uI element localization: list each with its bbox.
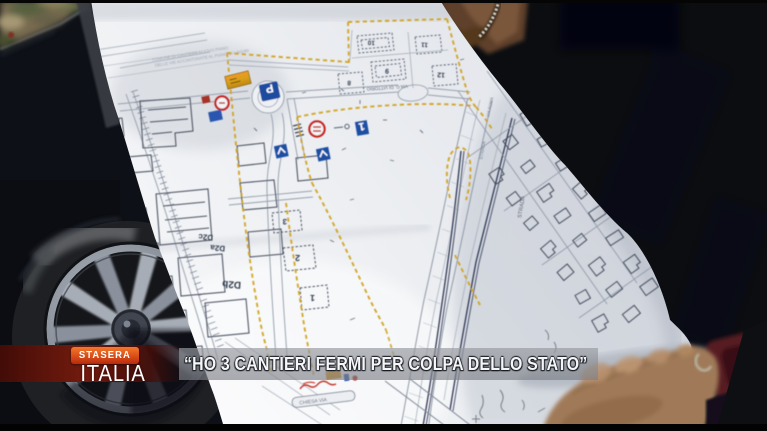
svg-text:D2b: D2b [222, 278, 242, 290]
svg-text:11: 11 [421, 41, 429, 48]
svg-text:D2a: D2a [210, 243, 226, 253]
svg-text:D2c: D2c [198, 232, 214, 242]
svg-text:9: 9 [385, 67, 389, 74]
svg-text:10: 10 [367, 38, 375, 46]
svg-text:1: 1 [310, 293, 315, 303]
svg-text:12: 12 [437, 70, 445, 78]
svg-text:2: 2 [295, 253, 300, 263]
